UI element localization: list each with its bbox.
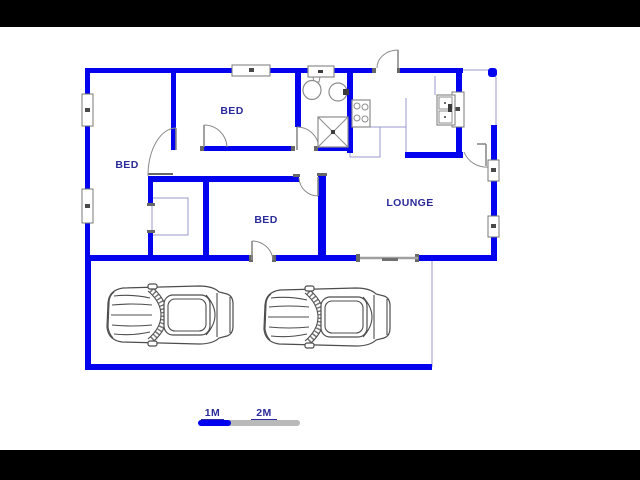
scale-label-1m: 1M bbox=[201, 407, 224, 420]
scale-bar-blue-segment bbox=[198, 420, 231, 426]
scale-label-2m: 2M bbox=[251, 407, 277, 420]
door-entry-top bbox=[377, 50, 398, 68]
window bbox=[82, 94, 93, 126]
scale-bar bbox=[198, 420, 300, 426]
window bbox=[488, 216, 499, 237]
wall-bed3-west bbox=[203, 182, 209, 261]
kitchen-counter-outline bbox=[350, 127, 380, 157]
kitchen-sink bbox=[437, 95, 455, 125]
car-2 bbox=[264, 286, 390, 348]
door-garage bbox=[252, 241, 273, 260]
floor-plan-drawing bbox=[0, 0, 640, 480]
wall-bottom-c bbox=[418, 255, 497, 261]
door-bed3 bbox=[299, 177, 318, 196]
wall-passage-south bbox=[148, 176, 299, 182]
sliding-door-patio bbox=[360, 258, 418, 261]
wall-top-right bbox=[398, 68, 463, 73]
wall-bottom-a bbox=[85, 255, 252, 261]
cupboard-outline bbox=[152, 198, 188, 235]
window bbox=[232, 65, 270, 76]
wall-bathroom-west bbox=[295, 73, 301, 127]
window bbox=[82, 189, 93, 223]
wall-cupboard-north bbox=[148, 182, 153, 205]
room-label-bed-3: BED bbox=[248, 214, 284, 226]
wall-garage-west bbox=[85, 261, 91, 370]
room-label-lounge: LOUNGE bbox=[382, 197, 438, 209]
wall-bed3-east bbox=[318, 176, 326, 261]
wall-bed2-south bbox=[203, 146, 295, 151]
stove bbox=[352, 100, 370, 127]
car-1 bbox=[107, 284, 233, 346]
wall-cupboard-south bbox=[148, 233, 153, 256]
room-label-bed-1: BED bbox=[109, 159, 145, 171]
window bbox=[488, 160, 499, 181]
wall-kitchen-south bbox=[405, 152, 463, 158]
wall-bottom-b bbox=[274, 255, 360, 261]
door-lounge-side bbox=[464, 144, 488, 167]
wash-basin bbox=[329, 83, 349, 101]
wall-corner-top-right bbox=[488, 68, 497, 77]
wall-garage-south bbox=[85, 364, 432, 370]
shower bbox=[318, 117, 348, 147]
door-bed2 bbox=[204, 125, 227, 147]
wall-right bbox=[491, 125, 497, 261]
room-label-bed-2: BED bbox=[214, 105, 250, 117]
floor-plan-image: BED BED BED LOUNGE 1M 2M bbox=[0, 0, 640, 480]
